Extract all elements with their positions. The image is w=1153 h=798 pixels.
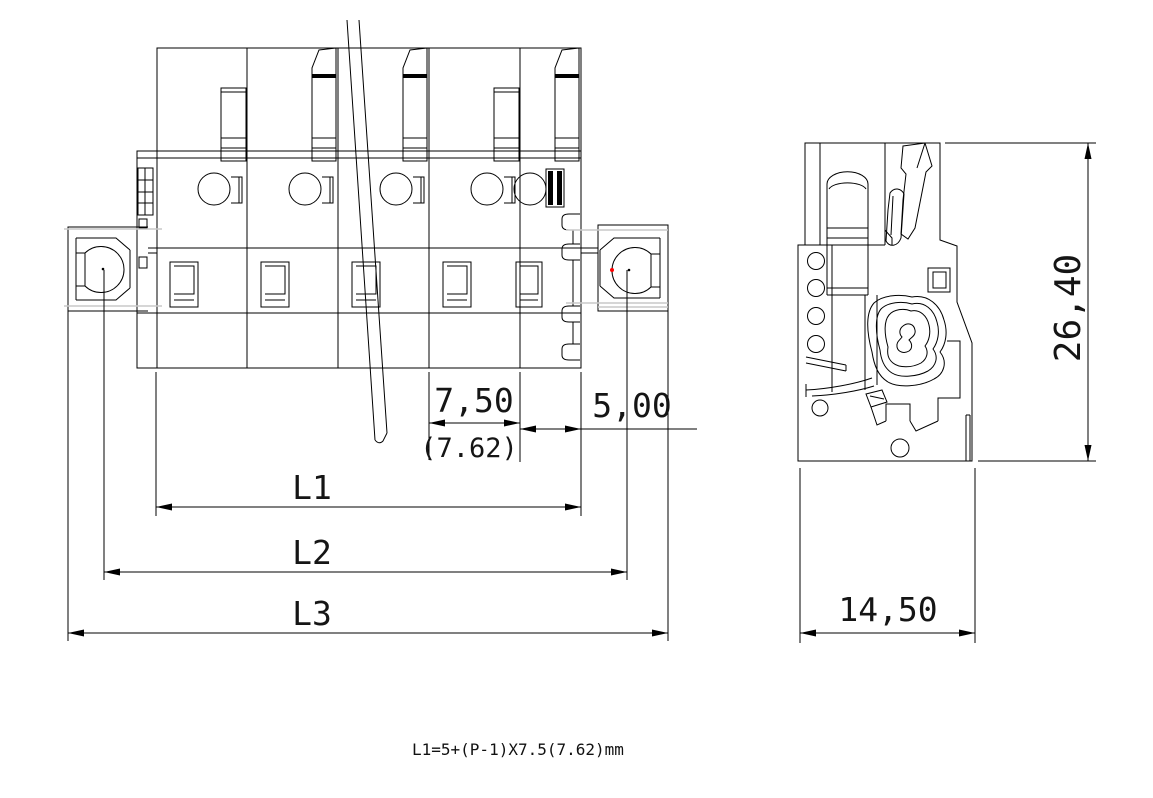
- left-mounting-ear: [64, 227, 162, 311]
- dimension-end-offset: 5,00: [520, 386, 697, 433]
- dimension-pitch: 7,50 (7.62): [420, 381, 520, 464]
- side-pin-chamber: [885, 143, 932, 245]
- wire-lead: [347, 20, 387, 443]
- side-width-dim-label: 14,50: [838, 590, 937, 629]
- dimensions: 7,50 (7.62) 5,00 L1 L2 L: [68, 143, 1096, 643]
- note-line-l1: L1=5+(P-1)X7.5(7.62)mm: [412, 738, 682, 762]
- solder-pin-windows: [170, 262, 542, 307]
- lever-short-cell1: [221, 88, 246, 161]
- ear-bridges: [148, 248, 598, 253]
- dimension-l2: L2: [104, 533, 627, 576]
- side-hole-circles: [808, 253, 910, 458]
- lever-tall-cell3: [403, 48, 427, 161]
- clamp-contact-cell5: [546, 169, 564, 207]
- side-square-window: [928, 268, 950, 292]
- right-edge-clip-tabs: [562, 214, 580, 360]
- lever-tall-cell2: [312, 48, 336, 161]
- front-body-outline: [137, 48, 581, 368]
- engineering-drawing-page: 7,50 (7.62) 5,00 L1 L2 L: [0, 0, 1153, 798]
- side-cylinder-slot: [827, 172, 877, 390]
- dimension-l1: L1: [156, 468, 581, 511]
- formula-notes: L1=5+(P-1)X7.5(7.62)mm L2=5.0+(P-1)X7.5(…: [412, 690, 682, 798]
- right-ear-center-mark: [628, 269, 631, 272]
- front-view: [64, 20, 668, 443]
- left-ear-center-mark: [102, 268, 105, 271]
- side-latch: [886, 189, 904, 245]
- wire-entry-holes: [198, 173, 546, 205]
- side-lower-mechanism: [806, 357, 970, 461]
- side-spring-clamp: [868, 295, 960, 421]
- lever-short-cell4: [494, 88, 519, 161]
- side-pin: [901, 143, 932, 239]
- pitch-alt-dim-label: (7.62): [420, 433, 518, 464]
- lever-tall-cell5: [555, 48, 579, 161]
- right-ear-red-marker-dot: [610, 268, 614, 272]
- dimension-side-width: 14,50: [800, 590, 975, 637]
- dimension-side-height: 26,40: [1048, 143, 1092, 461]
- front-extension-lines: [68, 270, 668, 641]
- l1-dim-label: L1: [292, 468, 332, 507]
- end-offset-dim-label: 5,00: [592, 386, 671, 425]
- dimension-l3: L3: [68, 594, 668, 637]
- front-cell-dividers: [157, 48, 520, 368]
- side-height-dim-label: 26,40: [1048, 254, 1089, 362]
- pitch-dim-label: 7,50: [434, 381, 513, 420]
- l2-dim-label: L2: [292, 533, 332, 572]
- front-horizontal-lines: [137, 151, 581, 313]
- l3-dim-label: L3: [292, 594, 332, 633]
- terminal-block-drawing: 7,50 (7.62) 5,00 L1 L2 L: [0, 0, 1153, 798]
- side-view: [798, 143, 972, 461]
